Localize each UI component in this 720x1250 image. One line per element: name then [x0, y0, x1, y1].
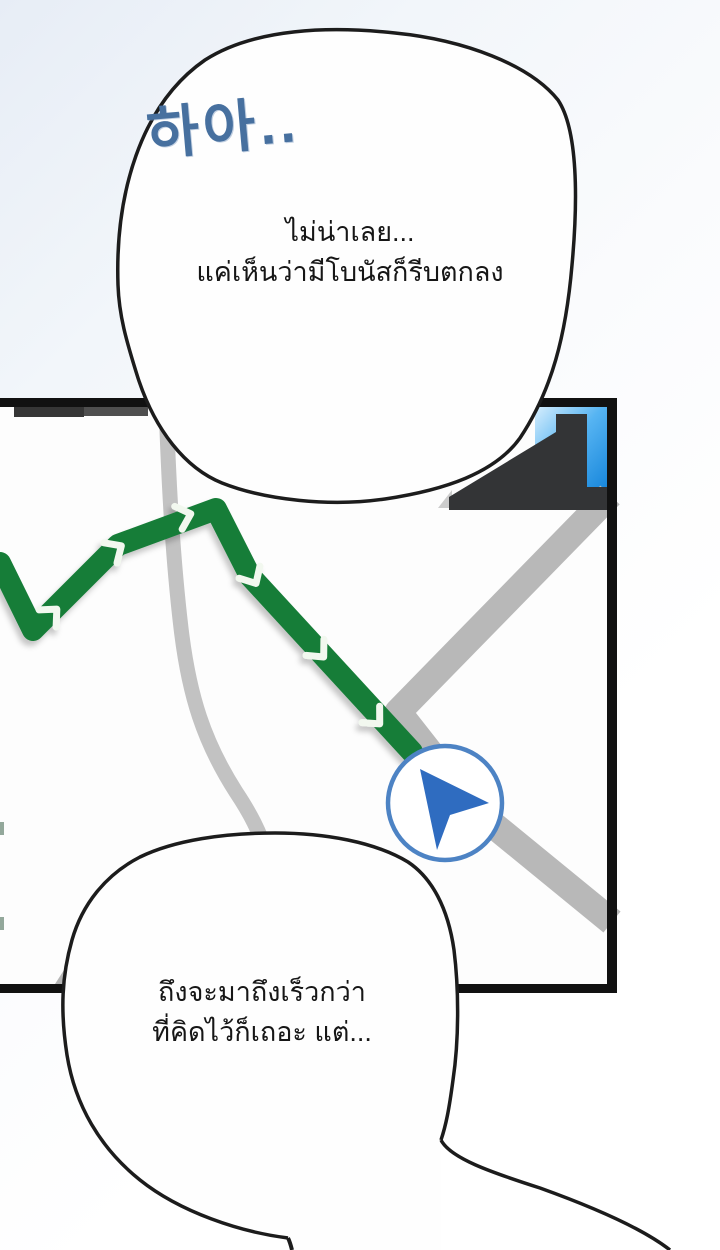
- speech-line: ไม่น่าเลย...: [150, 212, 550, 252]
- map-edge-feature: [0, 822, 4, 835]
- speech-line: ที่คิดไว้ก็เถอะ แต่...: [62, 1012, 462, 1052]
- navigation-arrow-icon: [388, 746, 502, 860]
- map-edge-feature: [0, 917, 4, 930]
- speech-text-top: ไม่น่าเลย... แค่เห็นว่ามีโบนัสก็รีบตกลง: [150, 212, 550, 292]
- webtoon-panel: 하아.. ไม่น่าเลย... แค่เห็นว่ามีโบนัสก็รีบ…: [0, 0, 720, 1250]
- speech-text-bottom: ถึงจะมาถึงเร็วกว่า ที่คิดไว้ก็เถอะ แต่..…: [62, 972, 462, 1052]
- speech-line: แค่เห็นว่ามีโบนัสก็รีบตกลง: [150, 252, 550, 292]
- speech-line: ถึงจะมาถึงเร็วกว่า: [62, 972, 462, 1012]
- next-bubble-curve: [441, 1140, 670, 1250]
- map-border-right: [607, 398, 617, 993]
- map-illustration: [0, 0, 720, 1250]
